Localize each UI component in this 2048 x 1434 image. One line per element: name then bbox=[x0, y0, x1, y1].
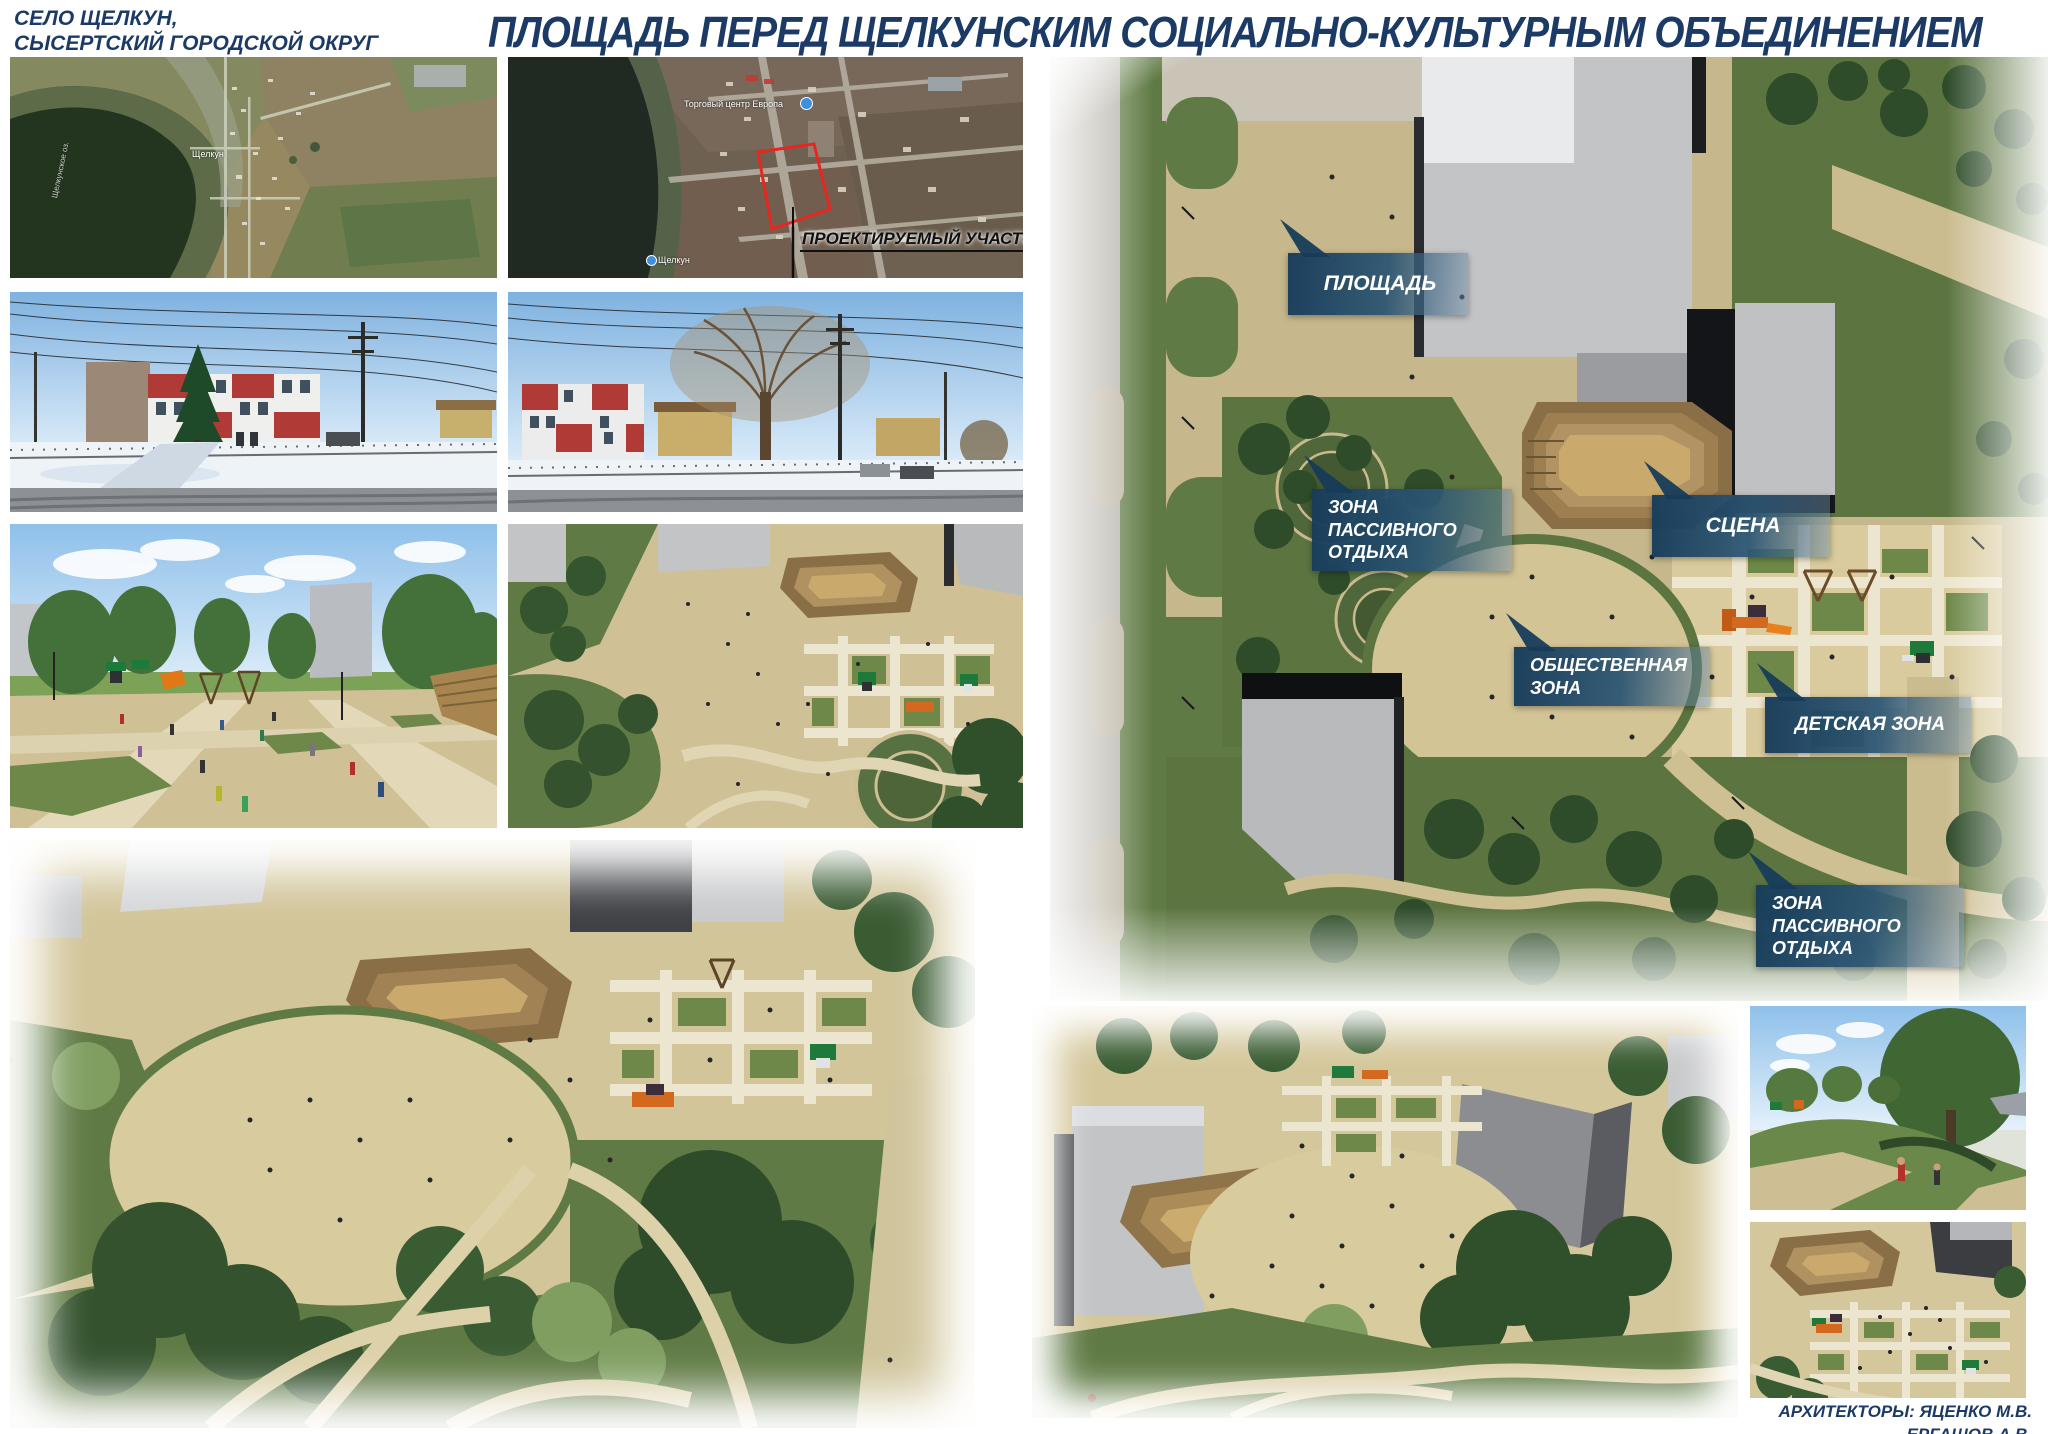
plan-label-text: ЗОНА bbox=[1530, 677, 1698, 700]
plan-label-text: ОТДЫХА bbox=[1772, 937, 1952, 960]
satellite-site-map: ПРОЕКТИРУЕМЫЙ УЧАСТОК Торговый центр Евр… bbox=[508, 57, 1023, 278]
render-square-aerial bbox=[1032, 1006, 1738, 1418]
plan-label-zona-passivnogo-otdyha-upper: ЗОНА ПАССИВНОГО ОТДЫХА bbox=[1312, 489, 1512, 571]
render2-graphic bbox=[508, 524, 1023, 828]
location-line2: СЫСЕРТСКИЙ ГОРОДСКОЙ ОКРУГ bbox=[14, 31, 378, 56]
plan-label-detskaya-zona: ДЕТСКАЯ ЗОНА bbox=[1765, 697, 1971, 753]
plan-label-obshchestvennaya-zona: ОБЩЕСТВЕННАЯ ЗОНА bbox=[1514, 647, 1710, 706]
render-aerial-view bbox=[508, 524, 1023, 828]
site-village-label: Щелкун bbox=[658, 255, 690, 265]
project-site-callout: ПРОЕКТИРУЕМЫЙ УЧАСТОК bbox=[800, 229, 1023, 252]
satellite-overview-map: Щелкун Щелкунское оз. bbox=[10, 57, 497, 278]
presentation-board: СЕЛО ЩЕЛКУН, СЫСЕРТСКИЙ ГОРОДСКОЙ ОКРУГ … bbox=[0, 0, 2048, 1434]
overview-village-label: Щелкун bbox=[192, 149, 224, 159]
site-leader-line bbox=[792, 207, 794, 278]
poi-map-pin-icon bbox=[800, 97, 813, 110]
square-aerial-graphic bbox=[1032, 1006, 1738, 1418]
plan-label-scena: СЦЕНА bbox=[1652, 495, 1830, 557]
plan-label-text: ОБЩЕСТВЕННАЯ bbox=[1530, 654, 1698, 677]
render-playground-eye-level bbox=[10, 524, 497, 828]
credits-line1: АРХИТЕКТОРЫ: ЯЦЕНКО М.В. bbox=[1612, 1400, 2032, 1423]
location-line1: СЕЛО ЩЕЛКУН, bbox=[14, 6, 378, 31]
plan-label-text: СЦЕНА bbox=[1706, 513, 1781, 539]
render-playground-aerial bbox=[1750, 1222, 2026, 1398]
playground-aerial-graphic bbox=[1750, 1222, 2026, 1398]
main-render-graphic bbox=[10, 840, 975, 1428]
location-heading: СЕЛО ЩЕЛКУН, СЫСЕРТСКИЙ ГОРОДСКОЙ ОКРУГ bbox=[14, 6, 378, 56]
poi-label: Торговый центр Европа bbox=[684, 99, 783, 109]
render1-graphic bbox=[10, 524, 497, 828]
master-plan: ПЛОЩАДЬ ЗОНА ПАССИВНОГО ОТДЫХА СЦЕНА ОБЩ… bbox=[1032, 57, 2048, 1001]
plan-label-text: ОТДЫХА bbox=[1328, 541, 1500, 564]
page-title: ПЛОЩАДЬ ПЕРЕД ЩЕЛКУНСКИМ СОЦИАЛЬНО-КУЛЬТ… bbox=[488, 8, 1982, 58]
master-plan-graphic bbox=[1032, 57, 2048, 1001]
render-path-view bbox=[1750, 1006, 2026, 1210]
plan-label-text: ДЕТСКАЯ ЗОНА bbox=[1795, 713, 1945, 737]
photo2-graphic bbox=[508, 292, 1023, 512]
existing-site-photo-2 bbox=[508, 292, 1023, 512]
plan-label-zona-passivnogo-otdyha-lower: ЗОНА ПАССИВНОГО ОТДЫХА bbox=[1756, 885, 1964, 967]
photo1-graphic bbox=[10, 292, 497, 512]
plan-label-ploshchad: ПЛОЩАДЬ bbox=[1288, 253, 1468, 315]
credits-line2: ЕРГАШОВ А.В. bbox=[1612, 1423, 2032, 1434]
path-view-graphic bbox=[1750, 1006, 2026, 1210]
existing-site-photo-1 bbox=[10, 292, 497, 512]
architects-credits: АРХИТЕКТОРЫ: ЯЦЕНКО М.В. ЕРГАШОВ А.В. bbox=[1612, 1400, 2032, 1434]
satellite-overview-graphic bbox=[10, 57, 497, 278]
plan-label-text: ЗОНА ПАССИВНОГО bbox=[1772, 892, 1952, 937]
render-main-aerial bbox=[10, 840, 975, 1428]
village-map-pin-icon bbox=[646, 255, 657, 266]
plan-label-text: ЗОНА ПАССИВНОГО bbox=[1328, 496, 1500, 541]
plan-label-text: ПЛОЩАДЬ bbox=[1324, 271, 1437, 297]
